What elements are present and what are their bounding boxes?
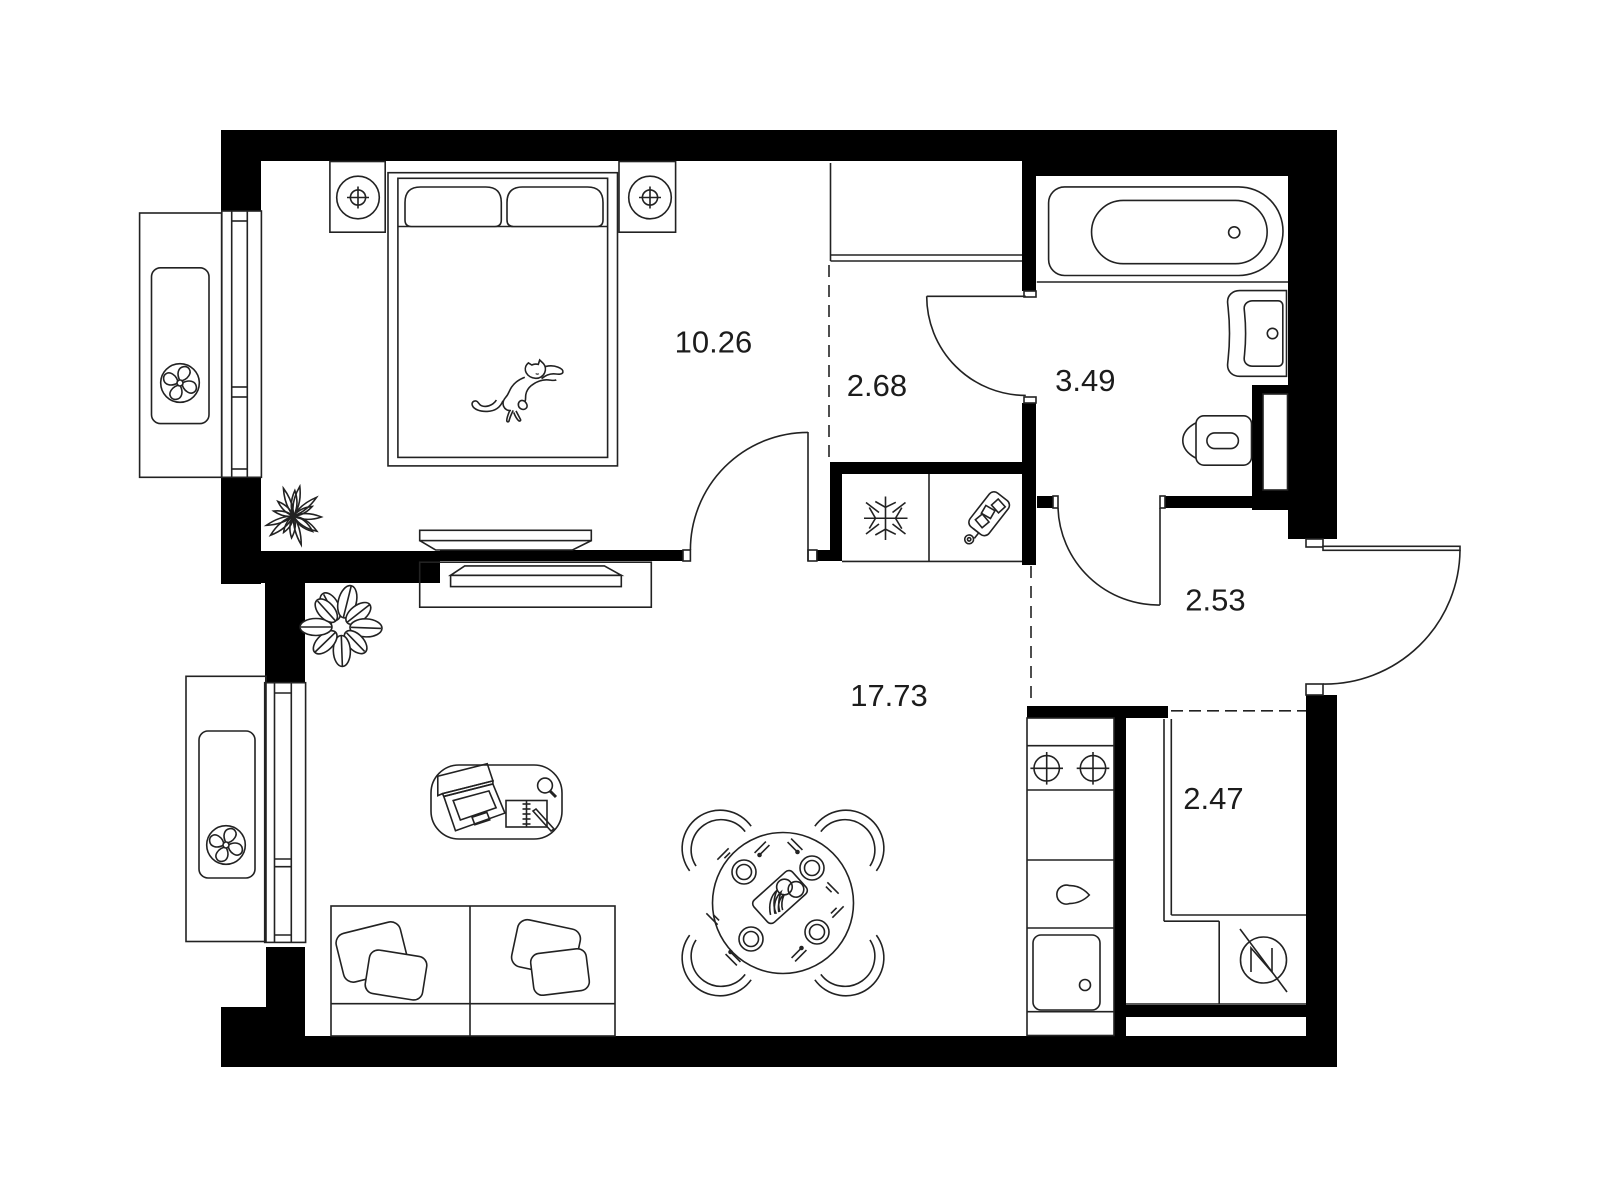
- svg-text:10.26: 10.26: [675, 324, 753, 359]
- svg-text:17.73: 17.73: [850, 678, 928, 713]
- svg-text:2.68: 2.68: [847, 368, 907, 403]
- svg-text:2.47: 2.47: [1183, 781, 1243, 816]
- svg-text:3.49: 3.49: [1055, 363, 1115, 398]
- svg-text:2.53: 2.53: [1185, 583, 1245, 618]
